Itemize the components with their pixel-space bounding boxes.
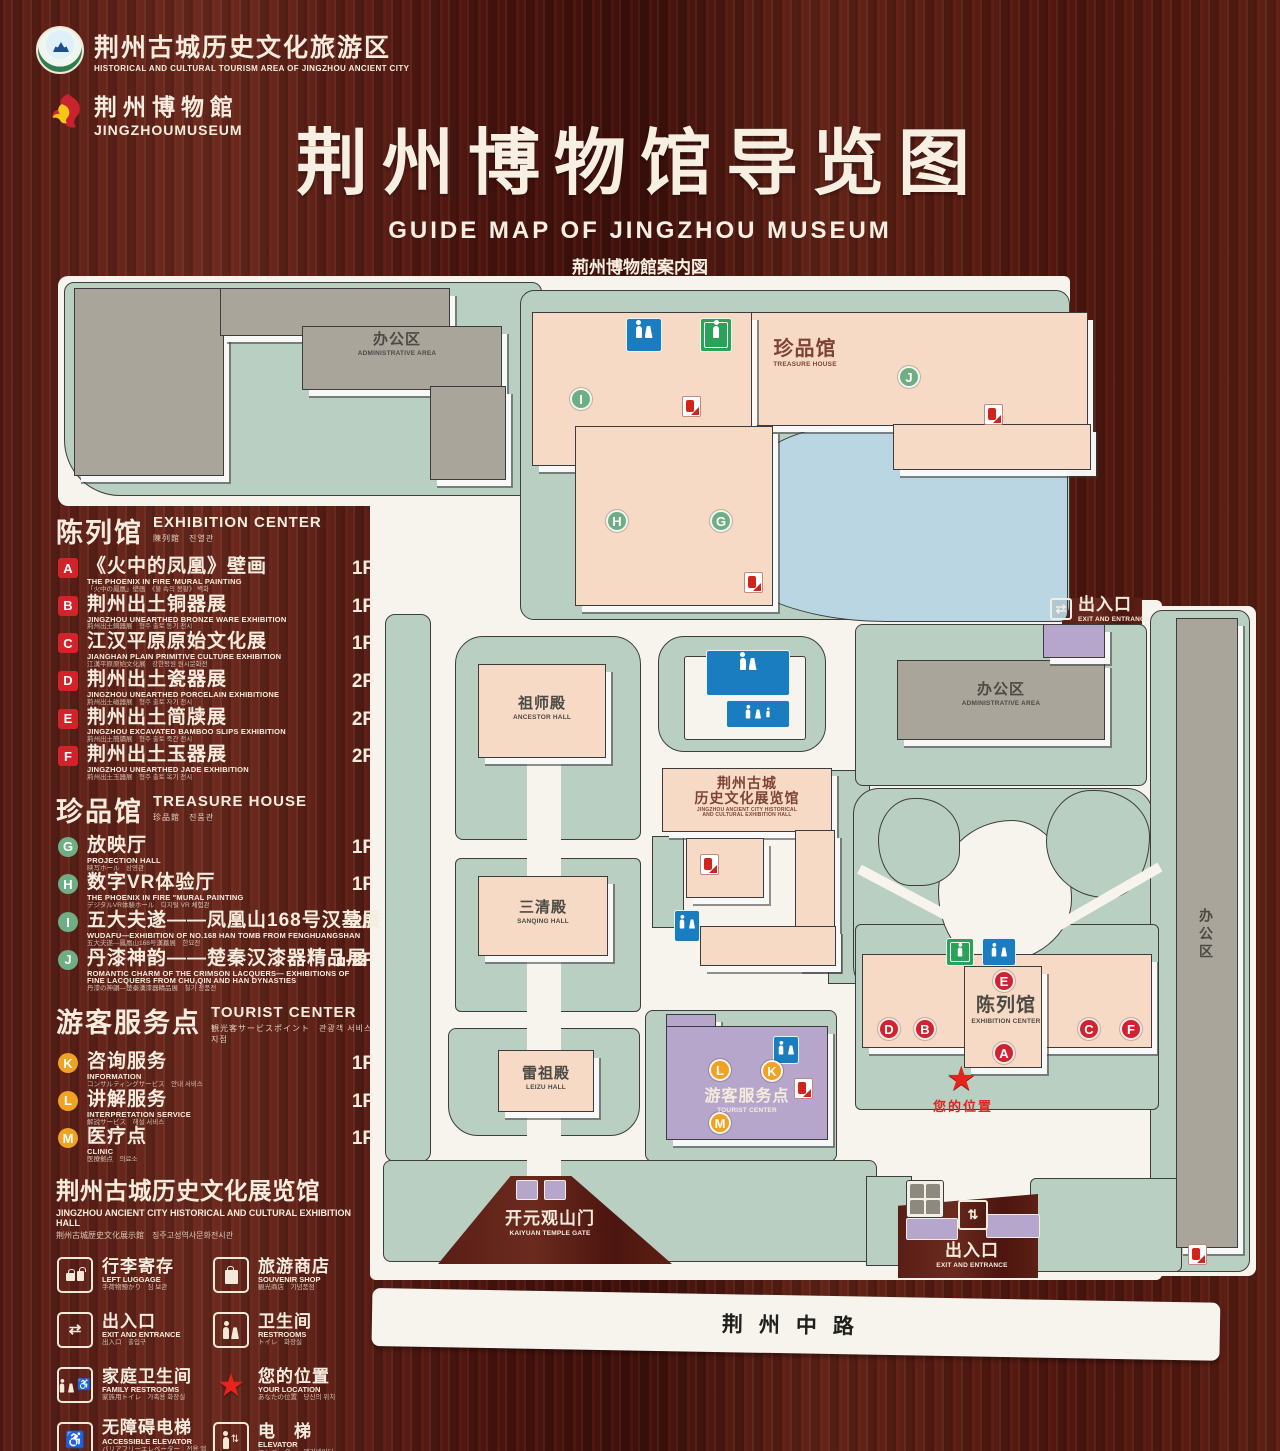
restroom-icon (674, 910, 700, 942)
fire-extinguisher-icon (984, 404, 1003, 425)
legend-marker-G: G (58, 837, 78, 857)
restroom-icon (773, 1036, 799, 1064)
guide-map-poster: 荆州古城历史文化旅游区 HISTORICAL AND CULTURAL TOUR… (0, 0, 1280, 1451)
family-restroom-icon (726, 700, 790, 728)
exit-entrance-icon: ⇄ (57, 1312, 93, 1348)
restroom-icon (626, 318, 662, 352)
legend-floor: 1F (352, 874, 374, 896)
plot-south-exit-east (1030, 1178, 1182, 1272)
legend-floor: 1-2F (335, 950, 374, 972)
treasure-house-east-block (893, 424, 1091, 470)
office-building-topleft-wing (430, 386, 506, 480)
office-building-topleft-west (74, 288, 224, 476)
fire-extinguisher-icon (1188, 1244, 1207, 1265)
label-kaiyuan-gate: 开元观山门KAIYUAN TEMPLE GATE (470, 1210, 630, 1237)
fire-extinguisher-icon (682, 396, 701, 417)
label-ancestor-hall: 祖师殿ANCESTOR HALL (467, 696, 617, 721)
fire-extinguisher-icon (700, 854, 719, 875)
map-marker-I: I (570, 388, 592, 410)
label-exit-right: 出入口EXIT AND ENTRANCE (1078, 596, 1198, 623)
legend-marker-K: K (58, 1053, 78, 1073)
road-label: 荆州中路 (722, 1308, 871, 1341)
legend-floor: 2F (352, 709, 374, 731)
legend-item-E: E荆州出土简牍展JINGZHOU EXCAVATED BAMBOO SLIPS … (56, 708, 374, 745)
legend-item-I: I五大夫遂——凤凰山168号汉墓展WUDAFU—EXHIBITION OF NO… (56, 911, 374, 948)
legend-section-header: 游客服务点TOURIST CENTER観光客サービスポイント 관광객 서비스 지… (56, 1001, 374, 1045)
your-location-star-icon: ★ (217, 1369, 246, 1401)
map-marker-J: J (898, 366, 920, 388)
label-exhibit-hall: 荆州古城 历史文化展览馆 JINGZHOU ANCIENT CITY HISTO… (672, 776, 822, 819)
your-location-label: 您的位置 (913, 1096, 1013, 1115)
garden-island-west (878, 798, 960, 886)
legend-floor: 1F (352, 596, 374, 618)
legend-floor: 2F (352, 746, 374, 768)
label-office-topleft: 办公区ADMINISTRATIVE AREA (322, 332, 472, 357)
legend-icon-location: ★您的位置YOUR LOCATIONあなたの位置 당신의 위치 (212, 1362, 368, 1408)
legend-item-A: A《火中的凤凰》壁画THE PHOENIX IN FIRE 'MURAL PAI… (56, 557, 374, 594)
accessible-elevator-icon: ♿ (57, 1422, 93, 1451)
map-marker-H: H (606, 510, 628, 532)
legend-section-2: 游客服务点TOURIST CENTER観光客サービスポイント 관광객 서비스 지… (56, 1001, 374, 1164)
legend-item-K: K咨询服务INFORMATIONコンサルティングサービス 안내 서비스1F (56, 1052, 374, 1089)
legend-marker-L: L (58, 1091, 78, 1111)
legend-marker-E: E (58, 709, 78, 729)
label-leizu-hall: 雷祖殿LEIZU HALL (471, 1066, 621, 1091)
map-marker-A: A (993, 1042, 1015, 1064)
kaiyuan-gate-pillar-east (544, 1180, 566, 1200)
legend-section-header: 陈列馆EXHIBITION CENTER陳列館 진열관 (56, 511, 374, 550)
legend-marker-M: M (58, 1128, 78, 1148)
legend-floor: 1F (352, 1128, 374, 1150)
label-office-right: 办公区ADMINISTRATIVE AREA (926, 682, 1076, 707)
legend-item-L: L讲解服务INTERPRETATION SERVICE解説サービス 해설 서비스… (56, 1090, 374, 1127)
legend-icon-family: ♿家庭卫生间FAMILY RESTROOMS家族用トイレ 가족용 화장실 (56, 1362, 212, 1408)
map-marker-K: K (761, 1060, 783, 1082)
legend-floor: 2F (352, 912, 374, 934)
legend-marker-B: B (58, 596, 78, 616)
legend-floor: 1F (352, 1053, 374, 1075)
restroom-icon (982, 938, 1016, 966)
plot-west-strip (385, 614, 431, 1162)
exit-entrance-icon: ⇅ (958, 1200, 988, 1230)
legend-item-M: M医疗点CLINIC医療拠点 의료소1F (56, 1127, 374, 1164)
legend-floor: 1F (352, 558, 374, 580)
legend-section-header: 珍品馆TREASURE HOUSE珍品館 진품관 (56, 790, 374, 829)
gate-walkway (527, 1110, 561, 1178)
label-exhibition-center: 陈列馆EXHIBITION CENTER (926, 996, 1086, 1025)
family-restroom-icon: ♿ (57, 1367, 93, 1403)
label-exit-bottom: 出入口EXIT AND ENTRANCE (902, 1242, 1042, 1269)
legend-icon-accessible: ♿无障碍电梯ACCESSIBLE ELEVATORバリアフリーエレベーター 전용… (56, 1417, 212, 1451)
legend-item-D: D荆州出土瓷器展JINGZHOU UNEARTHED PORCELAIN EXH… (56, 670, 374, 707)
left-luggage-icon (57, 1257, 93, 1293)
legend-item-F: F荆州出土玉器展JINGZHOU UNEARTHED JADE EXHIBITI… (56, 745, 374, 782)
legend-icon-restroom: 卫生间RESTROOMSトイレ 화장실 (212, 1307, 368, 1353)
road-jingzhou-middle: 荆州中路 (371, 1288, 1220, 1361)
legend-marker-J: J (58, 950, 78, 970)
exit-entrance-icon: ⇄ (1050, 598, 1072, 620)
kaiyuan-gate-pillar-west (516, 1180, 538, 1200)
legend-icon-souvenir: 旅游商店SOUVENIR SHOP観光商店 기념품점 (212, 1252, 368, 1298)
legend-icon-elevator: ⇅电 梯ELEVATORエレベーター 엘리베이터 (212, 1417, 368, 1451)
legend-marker-I: I (58, 912, 78, 932)
map-marker-L: L (709, 1059, 731, 1081)
legend-marker-A: A (58, 558, 78, 578)
legend-item-C: C江汉平原原始文化展JIANGHAN PLAIN PRIMITIVE CULTU… (56, 632, 374, 669)
legend-icon-luggage: 行李寄存LEFT LUGGAGE手荷物預かり 짐 보관 (56, 1252, 212, 1298)
legend-marker-H: H (58, 874, 78, 894)
restroom-icon (706, 650, 790, 696)
legend-section-0: 陈列馆EXHIBITION CENTER陳列館 진열관A《火中的凤凰》壁画THE… (56, 511, 374, 782)
fire-extinguisher-icon (744, 572, 763, 593)
your-location-star-icon: ★ (946, 1062, 976, 1096)
legend-floor: 1F (352, 837, 374, 859)
south-gate-east (986, 1214, 1040, 1238)
entrance-building-right (1043, 624, 1105, 658)
legend-marker-D: D (58, 671, 78, 691)
label-tourist-center: 游客服务点TOURIST CENTER (676, 1088, 818, 1114)
south-gate-west (906, 1218, 958, 1240)
legend-icon-exit: ⇄出入口EXIT AND ENTRANCE出入口 출입구 (56, 1307, 212, 1353)
map-marker-M: M (709, 1112, 731, 1134)
label-treasure-house: 珍品馆TREASURE HOUSE (730, 338, 880, 368)
legend-marker-F: F (58, 746, 78, 766)
map-marker-F: F (1120, 1018, 1142, 1040)
restroom-icon (213, 1312, 249, 1348)
souvenir-shop-icon (213, 1257, 249, 1293)
legend-section-1: 珍品馆TREASURE HOUSE珍品館 진품관G放映厅PROJECTION H… (56, 790, 374, 993)
elevator-icon (946, 938, 974, 966)
map-marker-G: G (710, 510, 732, 532)
hall-note-sub: 荆州古城歴史文化展示館 징주고성역사문화전시관 (56, 1231, 374, 1240)
legend-floor: 1F (352, 1091, 374, 1113)
elevator-icon: ⇅ (213, 1422, 249, 1451)
exhibit-hall-south (700, 926, 836, 966)
exhibit-hall-west (686, 838, 764, 898)
legend-hall-note: 荆州古城历史文化展览馆 JINGZHOU ANCIENT CITY HISTOR… (56, 1178, 374, 1240)
map-marker-E: E (993, 970, 1015, 992)
elevator-icon (700, 318, 732, 352)
legend-item-B: B荆州出土铜器展JINGZHOU UNEARTHED BRONZE WARE E… (56, 595, 374, 632)
legend-item-J: J丹漆神韵——楚秦汉漆器精品展ROMANTIC CHARM OF THE CRI… (56, 949, 374, 994)
legend-floor: 1F (352, 633, 374, 655)
legend-marker-C: C (58, 633, 78, 653)
label-office-strip: 办公区 (1196, 870, 1216, 1000)
legend-item-G: G放映厅PROJECTION HALL映写ホール 상영관1F (56, 836, 374, 873)
left-luggage-booth-icon (906, 1180, 944, 1218)
label-sanqing-hall: 三清殿SANQING HALL (468, 900, 618, 925)
map-marker-D: D (878, 1018, 900, 1040)
legend-sections: 陈列馆EXHIBITION CENTER陳列館 진열관A《火中的凤凰》壁画THE… (56, 511, 374, 1164)
legend-item-H: H数字VR体验厅THE PHOENIX IN FIRE "MURAL PAINT… (56, 873, 374, 910)
hall-note-en: JINGZHOU ANCIENT CITY HISTORICAL AND CUL… (56, 1208, 374, 1229)
legend-panel: 陈列馆EXHIBITION CENTER陳列館 진열관A《火中的凤凰》壁画THE… (56, 503, 374, 1451)
hall-note-zh: 荆州古城历史文化展览馆 (56, 1178, 374, 1205)
legend-floor: 2F (352, 671, 374, 693)
legend-icon-grid: 行李寄存LEFT LUGGAGE手荷物預かり 짐 보관旅游商店SOUVENIR … (56, 1252, 374, 1451)
